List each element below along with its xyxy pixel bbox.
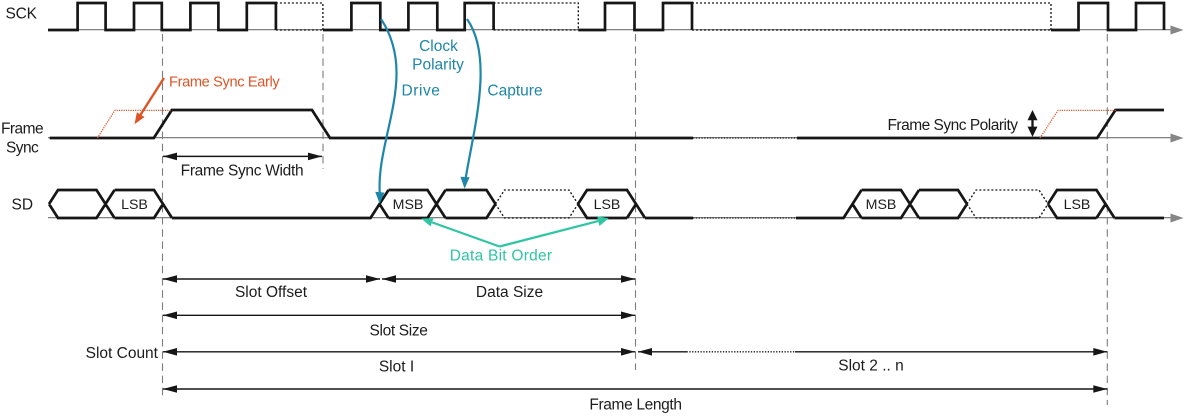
svg-text:MSB: MSB	[393, 197, 424, 213]
svg-text:Slot I: Slot I	[379, 359, 414, 376]
svg-text:Clock: Clock	[419, 38, 458, 55]
svg-text:Slot Offset: Slot Offset	[235, 284, 308, 301]
svg-text:Sync: Sync	[6, 140, 39, 157]
svg-text:Slot Size: Slot Size	[369, 323, 427, 340]
svg-text:Capture: Capture	[487, 83, 542, 100]
svg-text:Frame Sync Polarity: Frame Sync Polarity	[887, 117, 1018, 134]
svg-text:Frame Length: Frame Length	[589, 397, 681, 414]
svg-text:Frame Sync Early: Frame Sync Early	[169, 75, 280, 91]
svg-text:Slot Count: Slot Count	[86, 345, 159, 362]
svg-text:Slot 2 .. n: Slot 2 .. n	[838, 358, 903, 375]
svg-text:LSB: LSB	[121, 197, 148, 213]
svg-text:LSB: LSB	[1064, 197, 1091, 213]
svg-text:MSB: MSB	[866, 197, 897, 213]
svg-text:SD: SD	[12, 197, 34, 214]
svg-text:Polarity: Polarity	[412, 57, 464, 74]
svg-text:SCK: SCK	[6, 6, 38, 23]
svg-text:Frame: Frame	[1, 121, 43, 138]
svg-text:Data Size: Data Size	[476, 284, 543, 301]
svg-text:Data Bit Order: Data Bit Order	[450, 248, 553, 265]
svg-text:LSB: LSB	[594, 197, 621, 213]
svg-text:Drive: Drive	[402, 83, 441, 100]
svg-text:Frame Sync Width: Frame Sync Width	[181, 163, 304, 180]
